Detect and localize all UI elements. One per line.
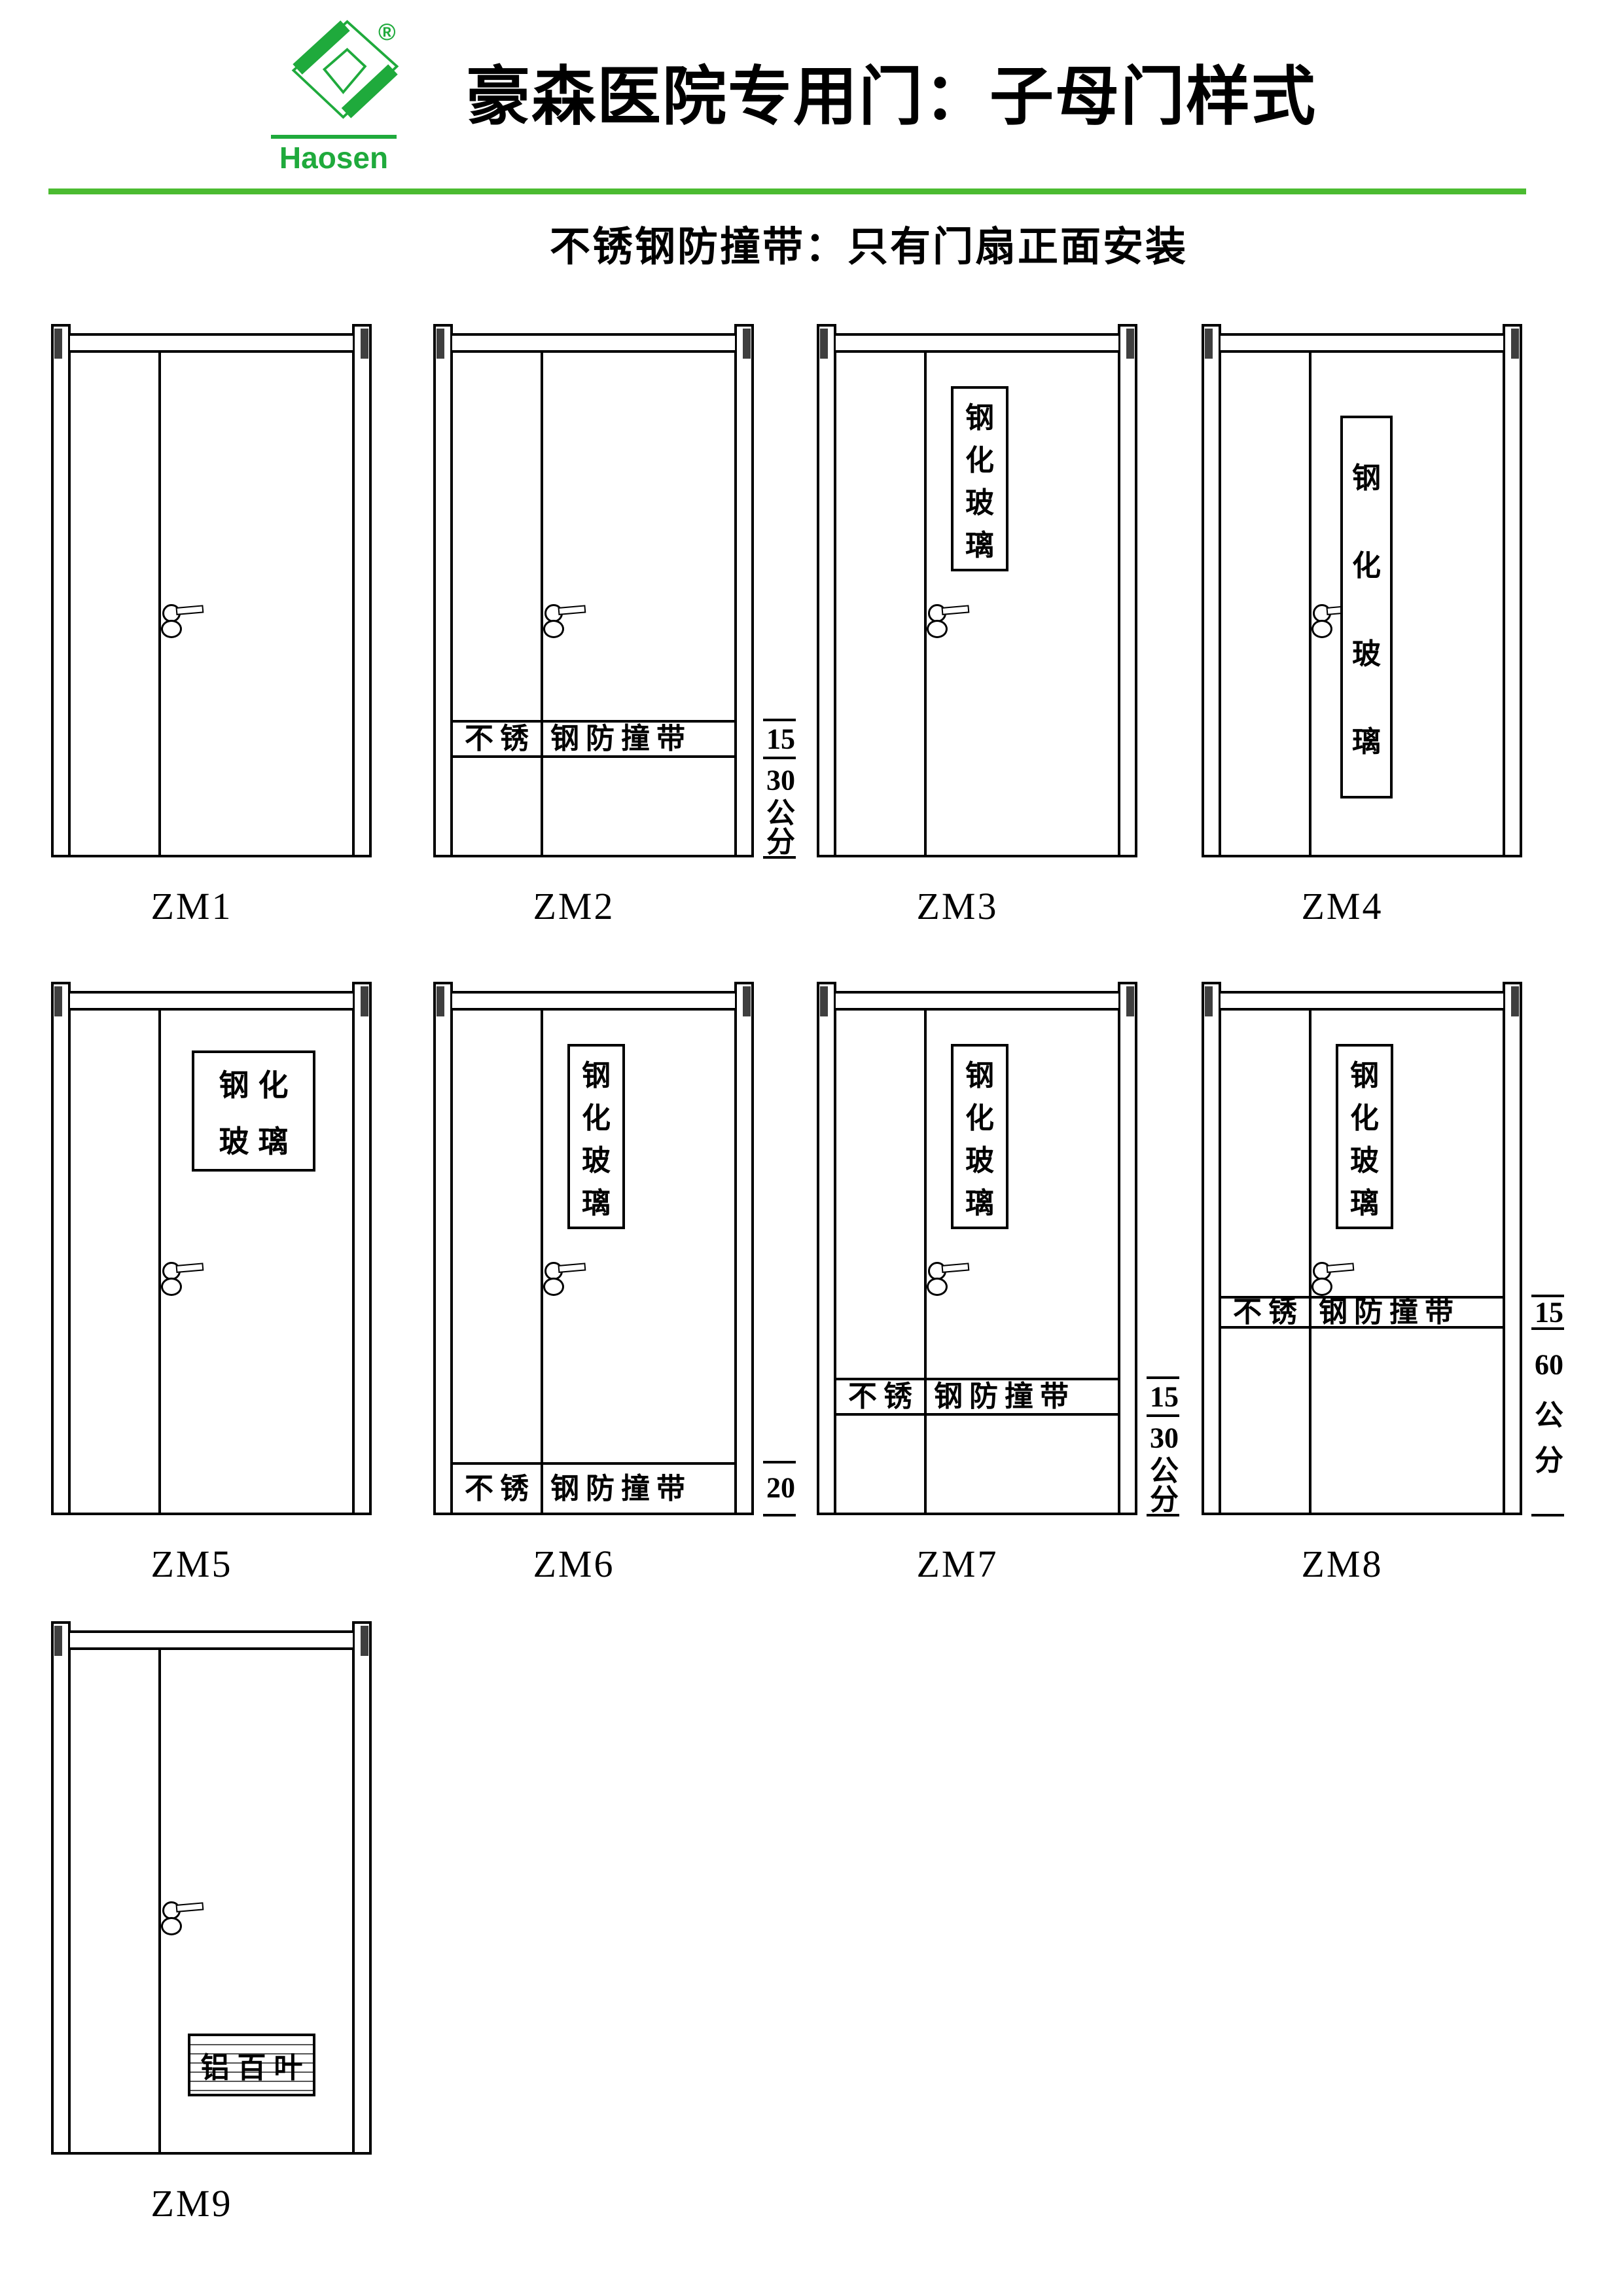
- brand-underline: [271, 135, 397, 139]
- dimension-tick-line: [1147, 1376, 1179, 1379]
- leaf-divider-line: [541, 352, 543, 857]
- door-diagram-zm9: 铝百叶ZM9: [51, 1621, 372, 2155]
- dimension-value: 15: [762, 723, 800, 756]
- dimension-tick-line: [763, 719, 796, 721]
- door-diagram-zm5: 钢化玻璃ZM5: [51, 982, 372, 1515]
- post-cap: [743, 329, 751, 359]
- glass-label-char: 璃: [1352, 718, 1381, 760]
- post-cap: [361, 986, 368, 1016]
- door-threshold-line: [51, 1513, 372, 1515]
- door-threshold-line: [1202, 1513, 1522, 1515]
- impact-band: 不锈钢防撞带: [1221, 1296, 1503, 1329]
- door-threshold-line: [51, 855, 372, 857]
- post-cap: [1205, 329, 1213, 359]
- impact-band-label-left: 不锈: [836, 1380, 925, 1413]
- glass-label-line: 钢化: [210, 1062, 298, 1105]
- door-head-rail: [1221, 991, 1503, 1011]
- door-handle-lever: [558, 605, 586, 615]
- glass-label-char: 钢: [1352, 454, 1381, 496]
- door-threshold-line: [51, 2152, 372, 2155]
- glass-label-char: 玻: [1350, 1137, 1379, 1179]
- door-lock-cylinder: [1311, 620, 1332, 638]
- leaf-divider-line: [158, 1010, 161, 1515]
- catalog-page: ® Haosen 豪森医院专用门：子母门样式 不锈钢防撞带：只有门扇正面安装 Z…: [0, 0, 1623, 2296]
- glass-label-char: 化: [965, 1094, 994, 1136]
- door-handle-lever: [941, 605, 969, 615]
- leaf-divider-line: [1309, 1010, 1311, 1515]
- post-cap: [1126, 329, 1134, 359]
- door-diagram-zm2: 不锈钢防撞带1530公分ZM2: [433, 324, 754, 857]
- door-head-rail: [70, 991, 353, 1011]
- door-style-label: ZM2: [433, 884, 715, 928]
- door-threshold-line: [433, 855, 754, 857]
- glass-label-char: 化: [582, 1094, 611, 1136]
- leaf-divider-line: [1309, 352, 1311, 857]
- door-frame-post-left: [51, 324, 71, 857]
- impact-band: 不锈钢防撞带: [452, 1462, 735, 1515]
- door-style-label: ZM4: [1202, 884, 1483, 928]
- door-head-rail: [70, 1630, 353, 1650]
- door-style-label: ZM9: [51, 2181, 332, 2225]
- dimension-annotation: 1560公分: [1530, 982, 1572, 1515]
- tempered-glass-panel: 钢化玻璃: [1336, 1044, 1393, 1229]
- dimension-tick-line: [763, 1514, 796, 1516]
- glass-label-char: 钢: [965, 1052, 994, 1094]
- door-lock-cylinder: [161, 1278, 182, 1296]
- post-cap: [361, 329, 368, 359]
- dimension-value: 15: [1145, 1380, 1183, 1414]
- leaf-divider-line: [541, 1010, 543, 1515]
- post-cap: [820, 986, 828, 1016]
- door-handle-lever: [175, 1902, 204, 1912]
- glass-label-char: 玻: [1352, 630, 1381, 672]
- door-lock-cylinder: [543, 620, 564, 638]
- door-frame-post-right: [352, 1621, 372, 2155]
- door-diagram-zm6: 钢化玻璃不锈钢防撞带20ZM6: [433, 982, 754, 1515]
- glass-label-char: 玻: [582, 1137, 611, 1179]
- door-diagram-zm4: 钢化玻璃ZM4: [1202, 324, 1522, 857]
- leaf-divider-line: [158, 352, 161, 857]
- impact-band-label-left: 不锈: [1221, 1299, 1310, 1326]
- door-threshold-line: [1202, 855, 1522, 857]
- registered-trademark-icon: ®: [378, 18, 396, 46]
- door-style-label: ZM7: [817, 1542, 1098, 1586]
- impact-band-label-right: 钢防撞带: [550, 723, 692, 755]
- louver-label: 铝百叶: [193, 2044, 311, 2086]
- glass-label-line: 玻璃: [210, 1118, 298, 1161]
- dimension-annotation: 1530公分: [762, 324, 804, 857]
- tempered-glass-panel: 钢化玻璃: [192, 1050, 315, 1172]
- door-lock-cylinder: [1311, 1278, 1332, 1296]
- tempered-glass-panel: 钢化玻璃: [1340, 416, 1393, 798]
- glass-label-char: 玻: [965, 1137, 994, 1179]
- door-frame-post-right: [352, 324, 372, 857]
- dimension-value: 公: [1530, 1391, 1568, 1433]
- door-style-label: ZM6: [433, 1542, 715, 1586]
- door-frame-post-left: [817, 324, 836, 857]
- leaf-divider-line: [158, 1649, 161, 2155]
- door-style-label: ZM5: [51, 1542, 332, 1586]
- door-frame-post-right: [1503, 982, 1522, 1515]
- door-lock-cylinder: [161, 620, 182, 638]
- tempered-glass-panel: 钢化玻璃: [567, 1044, 625, 1229]
- post-cap: [1511, 986, 1519, 1016]
- header-divider-rule: [48, 188, 1526, 194]
- glass-label-char: 钢: [1350, 1052, 1379, 1094]
- door-diagram-zm1: ZM1: [51, 324, 372, 857]
- tempered-glass-panel: 钢化玻璃: [951, 1044, 1008, 1229]
- glass-label-char: 化: [1350, 1094, 1379, 1136]
- impact-band-label-left: 不锈: [452, 1465, 541, 1513]
- door-head-rail: [836, 991, 1118, 1011]
- impact-band: 不锈钢防撞带: [452, 720, 735, 758]
- impact-band-label-left: 不锈: [452, 723, 541, 755]
- door-frame-post-right: [734, 324, 754, 857]
- door-diagram-zm3: 钢化玻璃ZM3: [817, 324, 1137, 857]
- dimension-value: 分: [1530, 1437, 1568, 1479]
- post-cap: [54, 329, 62, 359]
- door-frame-post-left: [1202, 324, 1221, 857]
- impact-band-label-right: 钢防撞带: [934, 1380, 1075, 1413]
- post-cap: [54, 986, 62, 1016]
- door-style-label: ZM3: [817, 884, 1098, 928]
- post-cap: [361, 1626, 368, 1656]
- impact-band-label-right: 钢防撞带: [550, 1465, 692, 1513]
- door-style-label: ZM1: [51, 884, 332, 928]
- glass-label-char: 钢: [965, 394, 994, 436]
- door-frame-post-left: [817, 982, 836, 1515]
- post-cap: [743, 986, 751, 1016]
- dimension-annotation: 20: [762, 982, 804, 1515]
- glass-label-char: 璃: [582, 1179, 611, 1221]
- door-handle-lever: [175, 1263, 204, 1273]
- door-frame-post-left: [51, 1621, 71, 2155]
- door-threshold-line: [817, 1513, 1137, 1515]
- door-frame-post-right: [1503, 324, 1522, 857]
- dimension-value: 60: [1530, 1348, 1568, 1382]
- leaf-divider-line: [924, 352, 927, 857]
- door-lock-cylinder: [927, 620, 948, 638]
- glass-label-char: 化: [1352, 542, 1381, 584]
- door-head-rail: [452, 333, 735, 353]
- leaf-divider-line: [924, 1010, 927, 1515]
- door-handle-lever: [175, 605, 204, 615]
- door-frame-post-left: [51, 982, 71, 1515]
- dimension-tick-line: [1147, 1414, 1179, 1417]
- door-handle-lever: [941, 1263, 969, 1273]
- impact-band: 不锈钢防撞带: [836, 1378, 1118, 1416]
- door-frame-post-left: [1202, 982, 1221, 1515]
- door-diagram-zm7: 钢化玻璃不锈钢防撞带1530公分ZM7: [817, 982, 1137, 1515]
- dimension-tick-line: [1531, 1514, 1564, 1516]
- door-lock-cylinder: [927, 1278, 948, 1296]
- glass-label-char: 璃: [965, 1179, 994, 1221]
- door-lock-cylinder: [543, 1278, 564, 1296]
- dimension-value: 分: [1145, 1476, 1183, 1518]
- impact-band-label-right: 钢防撞带: [1319, 1299, 1460, 1326]
- door-head-rail: [70, 333, 353, 353]
- page-title: 豪森医院专用门：子母门样式: [466, 45, 1317, 137]
- dimension-annotation: 1530公分: [1145, 982, 1187, 1515]
- dimension-value: 分: [762, 818, 800, 860]
- glass-label-char: 钢: [582, 1052, 611, 1094]
- glass-label-char: 璃: [965, 522, 994, 564]
- door-head-rail: [452, 991, 735, 1011]
- post-cap: [1205, 986, 1213, 1016]
- dimension-value: 15: [1530, 1296, 1568, 1329]
- door-frame-post-left: [433, 982, 453, 1515]
- door-frame-post-right: [352, 982, 372, 1515]
- tempered-glass-panel: 钢化玻璃: [951, 386, 1008, 571]
- post-cap: [820, 329, 828, 359]
- post-cap: [437, 986, 444, 1016]
- post-cap: [54, 1626, 62, 1656]
- door-head-rail: [1221, 333, 1503, 353]
- door-threshold-line: [817, 855, 1137, 857]
- dimension-value: 20: [762, 1471, 800, 1505]
- aluminum-louver-panel: 铝百叶: [188, 2034, 315, 2096]
- door-frame-post-right: [1118, 324, 1137, 857]
- door-frame-post-right: [1118, 982, 1137, 1515]
- dimension-tick-line: [763, 757, 796, 759]
- door-frame-post-left: [433, 324, 453, 857]
- door-handle-lever: [558, 1263, 586, 1273]
- door-style-label: ZM8: [1202, 1542, 1483, 1586]
- door-head-rail: [836, 333, 1118, 353]
- post-cap: [437, 329, 444, 359]
- door-lock-cylinder: [161, 1917, 182, 1935]
- glass-label-char: 玻: [965, 479, 994, 521]
- door-diagram-zm8: 钢化玻璃不锈钢防撞带1560公分ZM8: [1202, 982, 1522, 1515]
- brand-name: Haosen: [271, 140, 397, 175]
- glass-label-char: 璃: [1350, 1179, 1379, 1221]
- door-handle-lever: [1326, 1263, 1354, 1273]
- dimension-tick-line: [763, 1461, 796, 1463]
- door-frame-post-right: [734, 982, 754, 1515]
- page-subtitle: 不锈钢防撞带：只有门扇正面安装: [550, 213, 1188, 272]
- post-cap: [1511, 329, 1519, 359]
- post-cap: [1126, 986, 1134, 1016]
- glass-label-char: 化: [965, 437, 994, 478]
